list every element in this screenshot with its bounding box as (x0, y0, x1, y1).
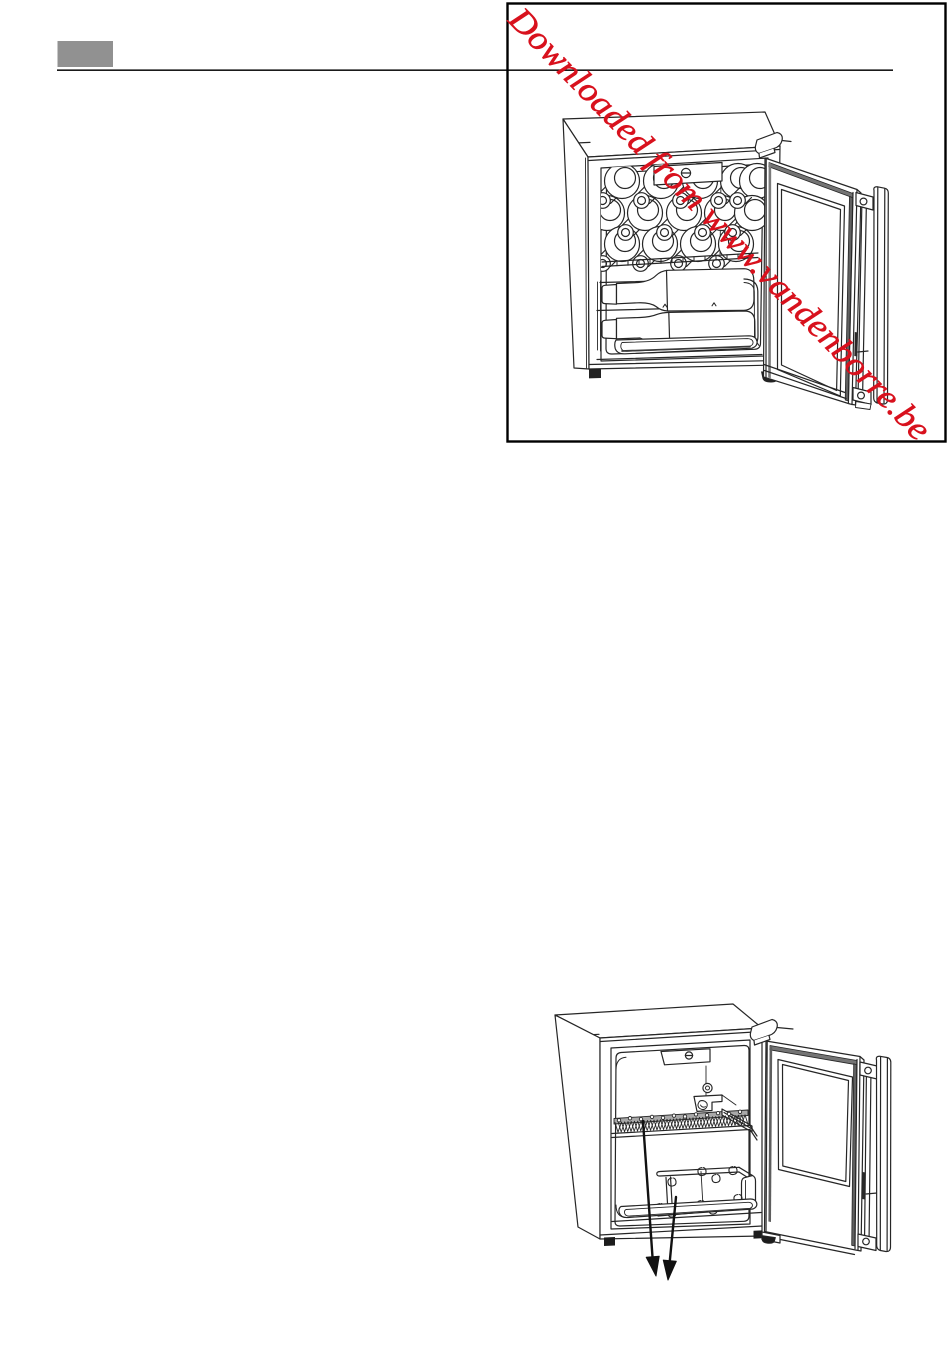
svg-text:Downloaded from www.vandenborr: Downloaded from www.vandenborre.be (501, 0, 938, 448)
